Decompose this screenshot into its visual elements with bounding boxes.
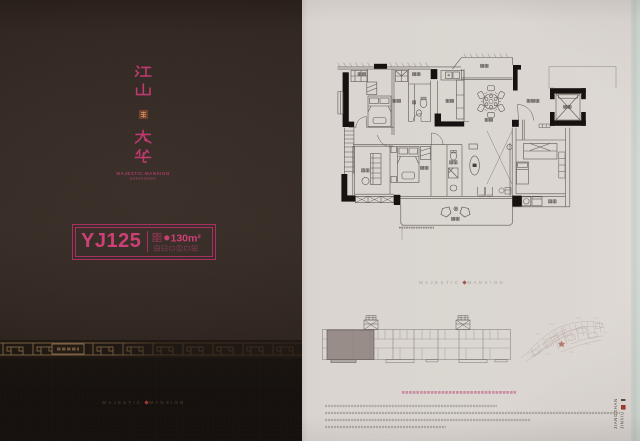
svg-text:JINXIU: JINXIU — [619, 411, 624, 429]
svg-text:130m²: 130m² — [171, 233, 202, 245]
svg-text:JIANGSHAN: JIANGSHAN — [613, 398, 618, 429]
